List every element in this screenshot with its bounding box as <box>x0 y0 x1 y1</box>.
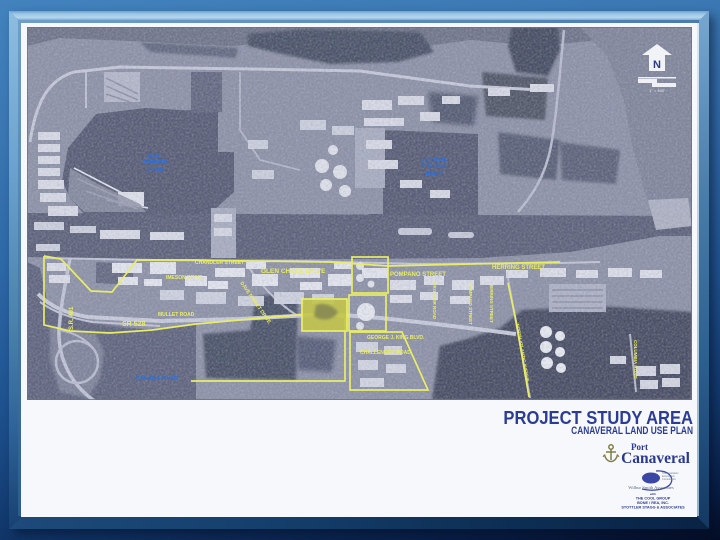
svg-text:BANANA RIVER: BANANA RIVER <box>136 376 178 382</box>
svg-text:CHALLENGER ROAD: CHALLENGER ROAD <box>360 350 411 356</box>
svg-text:Consultants: Consultants <box>662 477 676 481</box>
svg-text:CENTRAL: CENTRAL <box>421 157 448 163</box>
svg-text:N: N <box>653 59 661 71</box>
svg-text:Wilbur Smith Associates: Wilbur Smith Associates <box>628 485 674 490</box>
svg-text:TURNING: TURNING <box>421 164 446 170</box>
svg-text:STOTTLER STAGG & ASSOCIATES: STOTTLER STAGG & ASSOCIATES <box>621 506 685 510</box>
svg-text:MULLET ROAD: MULLET ROAD <box>158 312 195 318</box>
svg-text:HERRING STREET: HERRING STREET <box>492 265 545 271</box>
svg-text:1" = 400': 1" = 400' <box>649 88 665 93</box>
svg-text:IMESON DRIVE: IMESON DRIVE <box>166 275 203 281</box>
svg-text:Canaveral: Canaveral <box>621 450 691 467</box>
svg-text:S.R. 401: S.R. 401 <box>69 306 75 330</box>
svg-text:BASIN: BASIN <box>146 167 163 173</box>
svg-text:POMPANO STREET: POMPANO STREET <box>468 283 473 325</box>
svg-text:POMPANO STREET: POMPANO STREET <box>390 272 446 278</box>
svg-text:TURNING: TURNING <box>142 160 167 166</box>
svg-text:SR 528: SR 528 <box>122 321 145 328</box>
svg-text:WEST: WEST <box>147 153 164 159</box>
svg-text:BASIN: BASIN <box>425 171 442 177</box>
svg-text:CHANDLER STREET: CHANDLER STREET <box>195 260 244 266</box>
svg-text:BONE / REA, INC.: BONE / REA, INC. <box>637 501 669 505</box>
svg-text:THE COOL GROUP: THE COOL GROUP <box>636 497 671 501</box>
svg-text:with: with <box>649 492 656 496</box>
svg-text:GLEN CHEEK DRIVE: GLEN CHEEK DRIVE <box>261 268 326 275</box>
svg-text:GROUPER ROAD: GROUPER ROAD <box>432 282 437 320</box>
svg-text:COLUMBIA ROAD: COLUMBIA ROAD <box>633 340 638 379</box>
svg-text:GEORGE J. KING BLVD.: GEORGE J. KING BLVD. <box>367 335 425 341</box>
svg-text:HERRING STREET: HERRING STREET <box>489 283 494 323</box>
